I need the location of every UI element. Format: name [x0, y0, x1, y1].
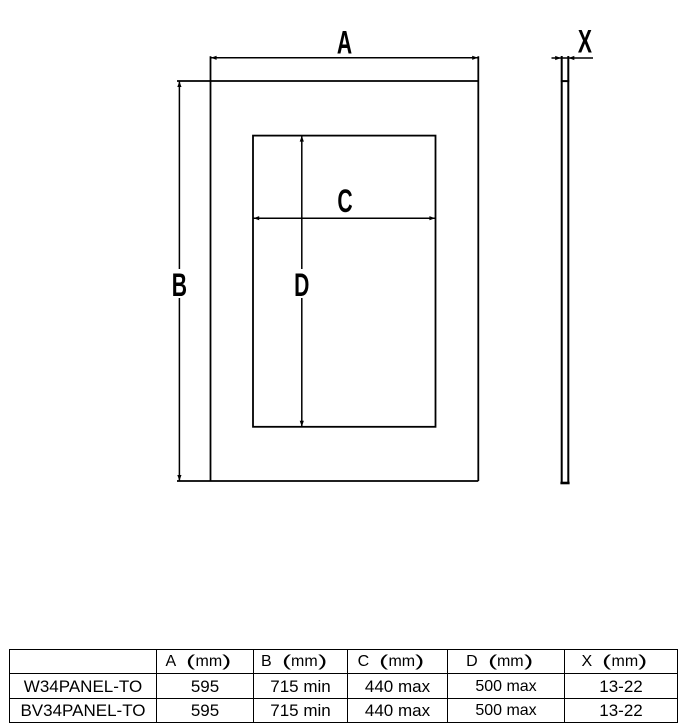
svg-text:A: A: [337, 24, 352, 61]
svg-text:C: C: [337, 182, 352, 219]
svg-text:B: B: [172, 266, 187, 303]
svg-text:X: X: [578, 23, 592, 60]
svg-text:D: D: [294, 266, 309, 303]
